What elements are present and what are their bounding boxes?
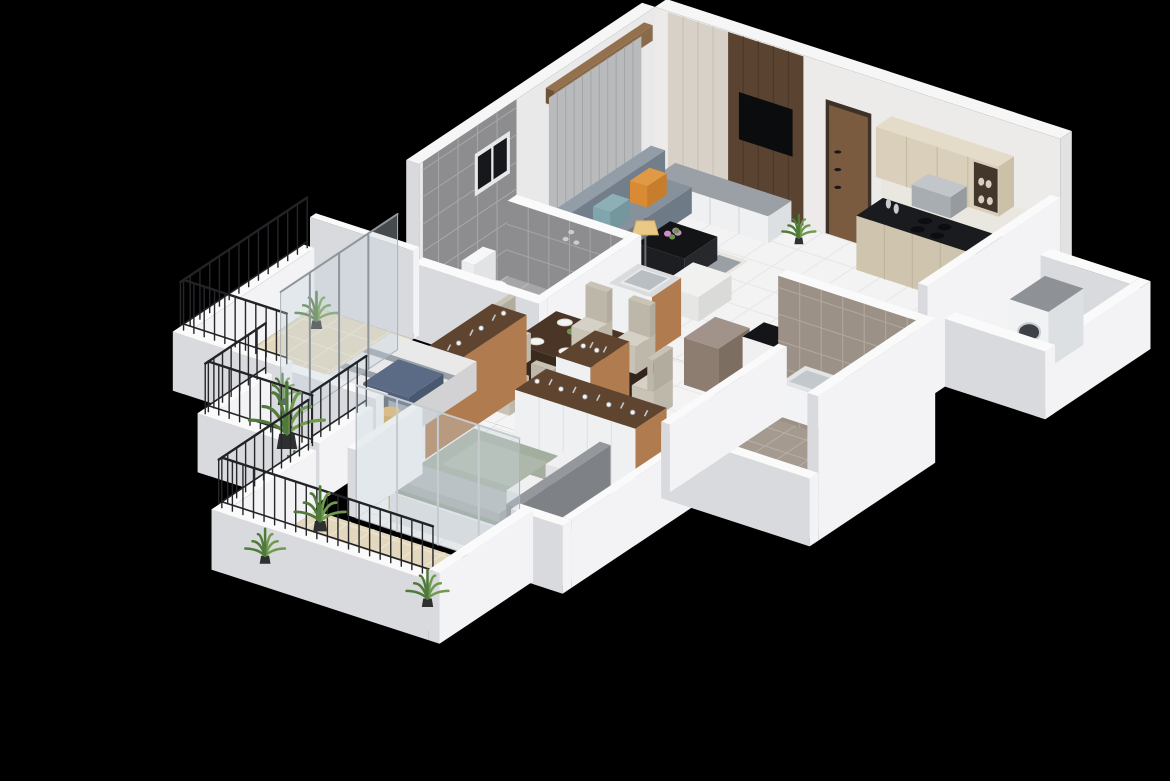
kitchen-open-shelf bbox=[974, 162, 998, 213]
floorplan-3d-render bbox=[0, 0, 1170, 781]
canvas-background bbox=[0, 0, 1170, 781]
